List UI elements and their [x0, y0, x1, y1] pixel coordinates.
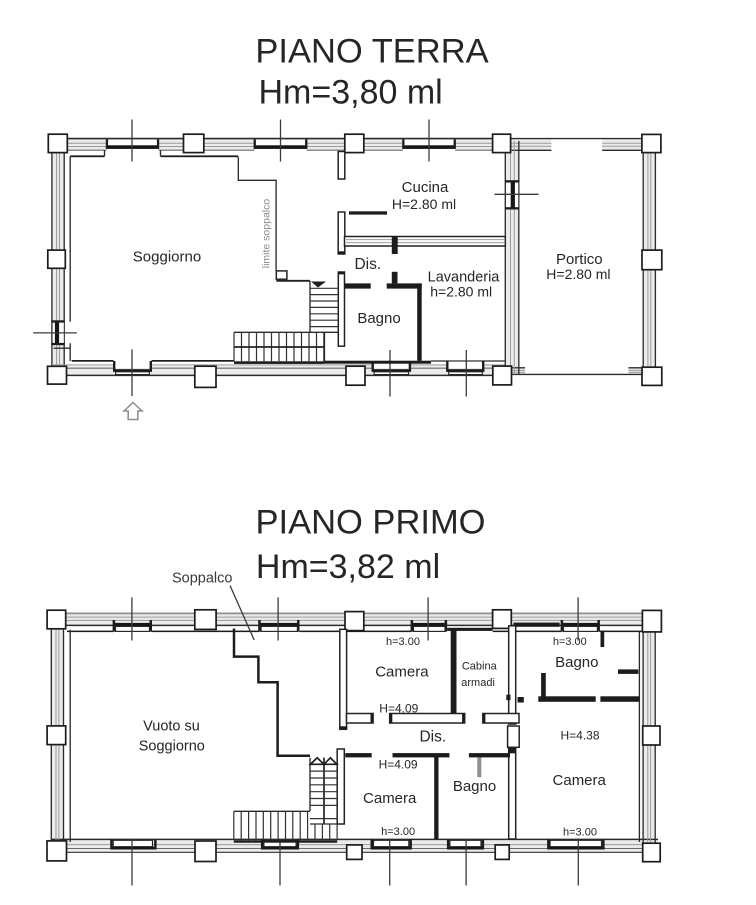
svg-text:Cucina: Cucina [402, 179, 449, 196]
svg-text:Camera: Camera [553, 772, 607, 789]
svg-text:Bagno: Bagno [555, 654, 598, 671]
svg-text:Camera: Camera [363, 790, 417, 807]
svg-text:Bagno: Bagno [357, 310, 400, 327]
svg-text:Hm=3,82 ml: Hm=3,82 ml [256, 548, 440, 586]
svg-text:H=4.09: H=4.09 [379, 758, 418, 772]
svg-text:h=3.00: h=3.00 [381, 826, 415, 838]
svg-text:Soppalco: Soppalco [172, 571, 232, 587]
svg-text:Hm=3,80 ml: Hm=3,80 ml [259, 74, 443, 112]
svg-text:h=2.80 ml: h=2.80 ml [430, 284, 492, 300]
svg-text:limite soppalco: limite soppalco [261, 199, 273, 269]
svg-text:Soggiorno: Soggiorno [133, 249, 201, 266]
svg-text:PIANO TERRA: PIANO TERRA [255, 33, 488, 71]
svg-text:armadi: armadi [461, 677, 495, 689]
svg-text:H=2.80 ml: H=2.80 ml [392, 196, 456, 212]
svg-text:H=4.38: H=4.38 [560, 729, 599, 743]
svg-text:Cabina: Cabina [462, 661, 498, 673]
svg-text:Dis.: Dis. [419, 729, 446, 746]
svg-text:h=3.00: h=3.00 [563, 826, 597, 838]
svg-text:Bagno: Bagno [453, 778, 496, 795]
svg-text:Vuoto su: Vuoto su [143, 719, 200, 735]
svg-text:h=3.00: h=3.00 [553, 636, 587, 648]
svg-text:Camera: Camera [375, 664, 429, 681]
svg-text:H=4.09: H=4.09 [379, 701, 418, 715]
svg-text:Soggiorno: Soggiorno [139, 739, 205, 755]
svg-text:h=3.00: h=3.00 [386, 636, 420, 648]
svg-text:H=2.80 ml: H=2.80 ml [546, 266, 610, 282]
svg-text:PIANO PRIMO: PIANO PRIMO [255, 504, 485, 542]
svg-text:Dis.: Dis. [354, 256, 381, 273]
